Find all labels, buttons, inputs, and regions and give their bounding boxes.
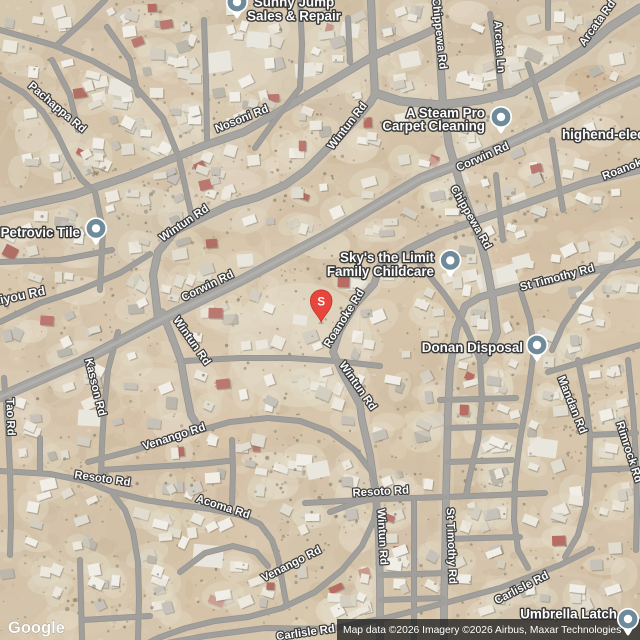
svg-text:highend-elect: highend-elect xyxy=(562,127,640,142)
svg-text:S: S xyxy=(317,296,325,308)
svg-text:Petrovic Tile: Petrovic Tile xyxy=(1,225,80,240)
svg-text:Carpet Cleaning: Carpet Cleaning xyxy=(382,119,485,134)
svg-text:Family Childcare: Family Childcare xyxy=(327,264,434,279)
svg-text:Sales & Repair: Sales & Repair xyxy=(247,9,342,24)
svg-text:Google: Google xyxy=(8,619,65,637)
svg-text:Tao Rd: Tao Rd xyxy=(3,398,16,436)
svg-text:Map data ©2026 Imagery ©2026 A: Map data ©2026 Imagery ©2026 Airbus, Max… xyxy=(343,625,621,636)
svg-text:Sky's the Limit: Sky's the Limit xyxy=(340,250,435,265)
svg-text:Donan Disposal: Donan Disposal xyxy=(422,340,523,355)
